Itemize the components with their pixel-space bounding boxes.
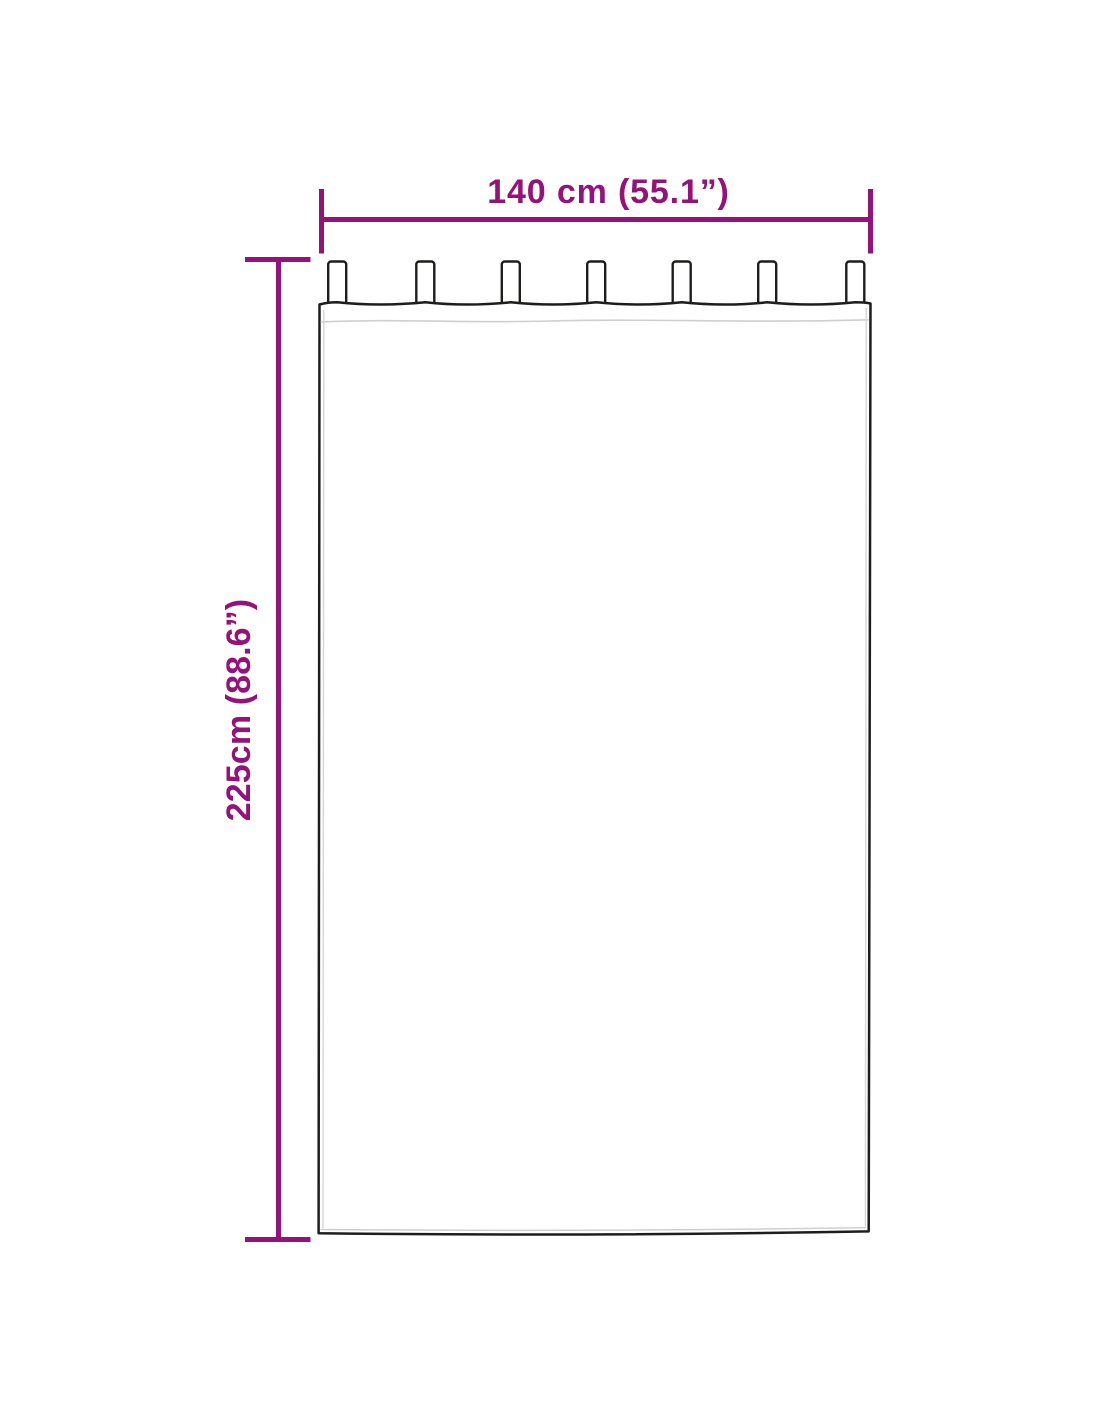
svg-text:225cm (88.6”): 225cm (88.6”) (220, 599, 258, 821)
svg-text:140 cm (55.1”): 140 cm (55.1”) (487, 173, 729, 211)
